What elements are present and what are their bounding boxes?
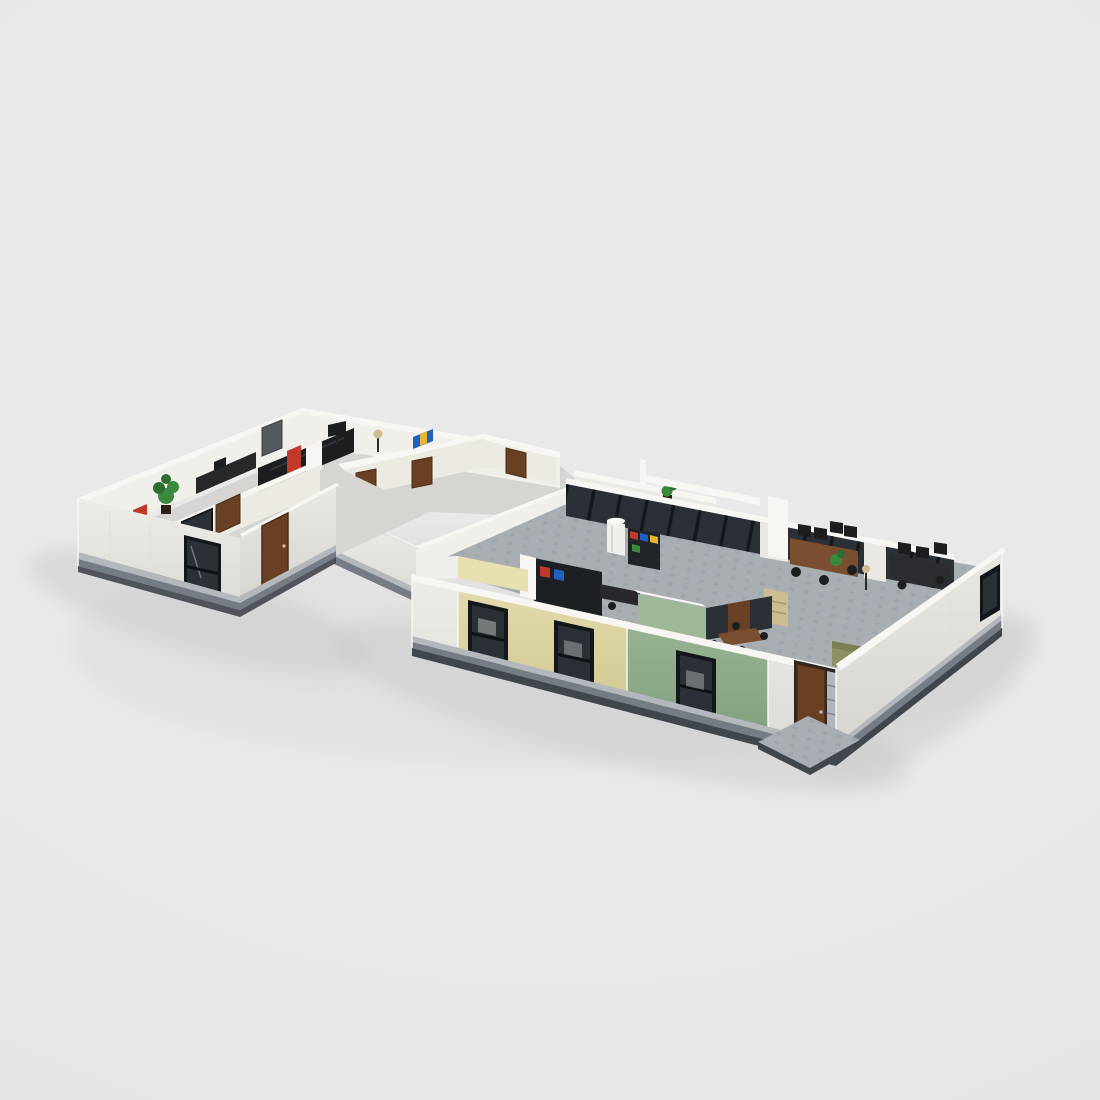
hallway-door — [412, 457, 432, 488]
office-chair — [898, 581, 907, 590]
office-pier — [864, 542, 886, 582]
desk-plant — [837, 550, 845, 558]
water-tank — [607, 518, 625, 556]
door-handle — [819, 710, 823, 714]
render-canvas — [0, 0, 1100, 1100]
office-chair — [760, 632, 768, 640]
bookshelf — [628, 528, 660, 570]
door-knob — [282, 544, 285, 547]
annex-wall-stub — [640, 458, 646, 488]
white-inner-strip — [420, 556, 458, 580]
office-chair — [791, 567, 801, 577]
office-chair — [732, 622, 740, 630]
office-chair — [819, 575, 829, 585]
office-model-render — [0, 0, 1100, 1100]
desk-cluster-2 — [890, 542, 950, 590]
office-chair — [847, 565, 857, 575]
office-chair — [936, 576, 945, 585]
white-pillar — [768, 496, 788, 560]
hallway-door — [506, 448, 526, 478]
